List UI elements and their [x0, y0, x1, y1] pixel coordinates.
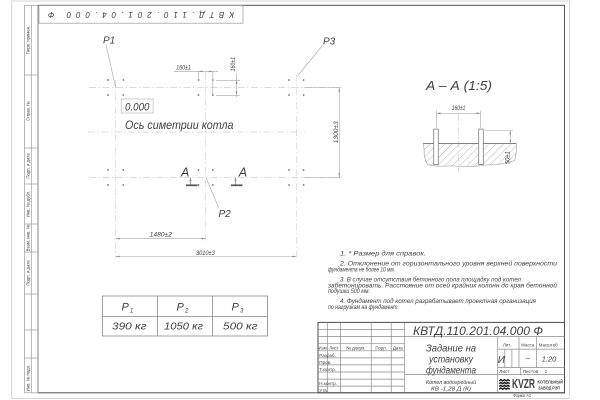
svg-text:KVZR: KVZR [512, 377, 535, 391]
svg-text:Формат А3: Формат А3 [513, 393, 531, 398]
svg-text:А – А (1:5): А – А (1:5) [425, 78, 492, 93]
svg-text:КВ -1,28 Д (К): КВ -1,28 Д (К) [431, 386, 471, 392]
svg-text:Разраб.: Разраб. [319, 353, 336, 358]
svg-text:фундамента: фундамента [426, 364, 476, 376]
svg-text:КВТД.110.201.04.000 Ф: КВТД.110.201.04.000 Ф [413, 324, 543, 338]
svg-text:P: P [232, 302, 240, 314]
svg-text:А: А [238, 166, 247, 180]
svg-text:по нагрузкам на фундамент.: по нагрузкам на фундамент. [328, 303, 399, 311]
svg-text:Листов: Листов [523, 369, 539, 375]
svg-text:P2: P2 [219, 209, 232, 220]
svg-text:Дата: Дата [393, 346, 403, 351]
svg-text:390 кг: 390 кг [112, 321, 147, 332]
svg-text:Утв.: Утв. [319, 388, 328, 393]
svg-text:50±1: 50±1 [505, 151, 511, 164]
svg-text:1: 1 [130, 309, 133, 315]
svg-text:1. * Размер для справок.: 1. * Размер для справок. [340, 250, 426, 258]
svg-text:1480±2: 1480±2 [150, 231, 173, 238]
svg-text:P: P [177, 302, 185, 314]
svg-text:А: А [180, 166, 189, 180]
svg-text:160±1: 160±1 [176, 65, 191, 71]
svg-text:Подп. и дата: Подп. и дата [26, 153, 31, 179]
svg-text:1:20: 1:20 [542, 354, 557, 363]
svg-text:Инв. № подл.: Инв. № подл. [26, 365, 31, 392]
svg-text:Подп. и дата: Подп. и дата [26, 260, 31, 286]
svg-text:P1: P1 [103, 35, 115, 46]
svg-text:Справ. №: Справ. № [26, 101, 31, 121]
svg-text:Лит.: Лит. [503, 343, 511, 348]
svg-text:P3: P3 [323, 37, 336, 48]
svg-text:Масса: Масса [521, 343, 535, 348]
svg-text:1300±3: 1300±3 [333, 121, 340, 144]
svg-text:Масштаб: Масштаб [539, 343, 558, 348]
svg-text:P: P [122, 302, 130, 314]
svg-text:1: 1 [545, 369, 548, 375]
svg-text:–: – [526, 354, 531, 363]
svg-text:500 кг: 500 кг [223, 321, 258, 332]
svg-text:3010±3: 3010±3 [196, 250, 215, 257]
svg-text:Изм: Изм [319, 346, 327, 351]
svg-text:0.000: 0.000 [125, 101, 150, 113]
svg-text:Задание на: Задание на [426, 344, 476, 355]
svg-text:Взам. инв. №: Взам. инв. № [26, 224, 31, 251]
svg-text:фундамента не более 10 мм.: фундамента не более 10 мм. [328, 265, 395, 273]
svg-text:Перв. примен.: Перв. примен. [26, 26, 31, 55]
svg-text:Т.контр.: Т.контр. [319, 367, 336, 372]
svg-text:№ докум.: № докум. [346, 346, 365, 351]
svg-text:КОТЕЛЬНЫЙ: КОТЕЛЬНЫЙ [538, 380, 564, 385]
svg-text:Лист: Лист [329, 346, 339, 351]
svg-text:Котел водогрейный: Котел водогрейный [426, 379, 477, 386]
svg-text:Ось симетрии котла: Ось симетрии котла [125, 120, 234, 132]
svg-text:Инв. № дубл.: Инв. № дубл. [26, 191, 31, 218]
svg-text:установку: установку [428, 354, 474, 365]
svg-text:И: И [498, 355, 506, 366]
svg-text:160±1: 160±1 [452, 106, 466, 112]
svg-text:Подп.: Подп. [375, 346, 387, 351]
svg-text:160±1: 160±1 [231, 57, 237, 72]
svg-text:Лист: Лист [499, 369, 510, 375]
svg-text:Н.контр.: Н.контр. [319, 381, 337, 386]
svg-text:ЗАВОД РЭП: ЗАВОД РЭП [538, 385, 560, 390]
svg-text:1050 кг: 1050 кг [164, 321, 203, 332]
svg-text:подушки 500 мм.: подушки 500 мм. [328, 287, 370, 295]
svg-text:2: 2 [184, 309, 189, 315]
svg-text:Пров.: Пров. [319, 360, 331, 365]
